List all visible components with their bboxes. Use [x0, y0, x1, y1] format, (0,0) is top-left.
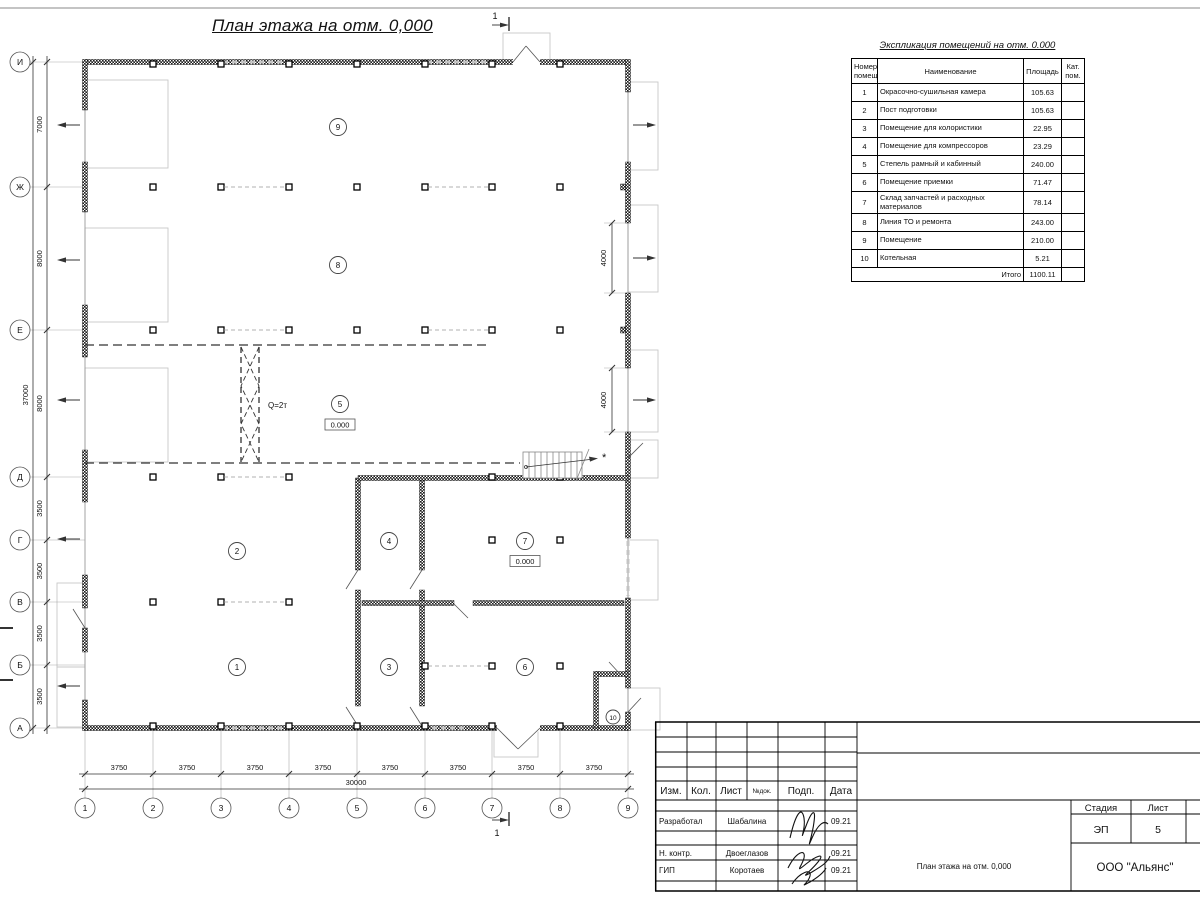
room-num: 1 — [852, 84, 878, 102]
room-num: 10 — [852, 250, 878, 268]
room-name: Помещение приемки — [878, 174, 1024, 192]
sign-date: 09.21 — [831, 849, 852, 858]
axis-col-label: 8 — [558, 803, 563, 813]
room-cat — [1062, 102, 1085, 120]
col-podp: Подп. — [788, 786, 815, 797]
axis-col-label: 5 — [355, 803, 360, 813]
axis-col-label: 6 — [423, 803, 428, 813]
section-mark-top: 1 — [492, 11, 497, 21]
section-marks: 1 1 — [492, 11, 509, 838]
drawing-sheet: { "plan": { "title": "План этажа на отм.… — [0, 0, 1200, 900]
explication: Экспликация помещений на отм. 0.000 Номе… — [851, 40, 1084, 282]
room-circle-2: 2 — [235, 547, 240, 556]
room-num: 4 — [852, 138, 878, 156]
titleblock: Изм. Кол. Лист №док. Подп. Дата Разработ… — [655, 722, 1200, 891]
room-num: 2 — [852, 102, 878, 120]
room-num: 3 — [852, 120, 878, 138]
room-name: Степель рамный и кабинный — [878, 156, 1024, 174]
axis-row-label: Д — [17, 472, 23, 482]
table-row: 6Помещение приемки71.47 — [852, 174, 1085, 192]
room-cat — [1062, 250, 1085, 268]
col-date: Дата — [830, 786, 853, 797]
svg-text:3500: 3500 — [35, 625, 44, 642]
room-cat — [1062, 214, 1085, 232]
stage-label: Стадия — [1085, 803, 1117, 814]
crane-strip — [241, 347, 259, 462]
sheet-label: Лист — [1148, 803, 1169, 814]
room-area: 240.00 — [1024, 156, 1062, 174]
svg-text:3750: 3750 — [247, 763, 264, 772]
svg-text:30000: 30000 — [346, 778, 367, 787]
table-row: 9Помещение210.00 — [852, 232, 1085, 250]
section-mark-bottom: 1 — [494, 828, 499, 838]
table-row: 8Линия ТО и ремонта243.00 — [852, 214, 1085, 232]
room-name: Пост подготовки — [878, 102, 1024, 120]
axis-row-label: Б — [17, 660, 23, 670]
room-num: 5 — [852, 156, 878, 174]
axis-row-label: В — [17, 597, 23, 607]
svg-text:3750: 3750 — [315, 763, 332, 772]
axis-row-label: Ж — [16, 182, 24, 192]
table-row: 2Пост подготовки105.63 — [852, 102, 1085, 120]
col-kol: Кол. — [691, 786, 711, 797]
axis-row-label: А — [17, 723, 23, 733]
table-total-row: Итого 1100.11 — [852, 268, 1085, 282]
room-circle-9: 9 — [336, 123, 341, 132]
table-row: 3Помещение для колористики22.95 — [852, 120, 1085, 138]
doc-name: План этажа на отм. 0,000 — [917, 862, 1012, 871]
windows — [223, 62, 628, 728]
total-area: 1100.11 — [1024, 268, 1062, 282]
col-izm: Изм. — [660, 786, 681, 797]
explication-title: Экспликация помещений на отм. 0.000 — [851, 40, 1084, 51]
room-name: Склад запчастей и расходных материалов — [878, 192, 1024, 214]
table-row: 5Степель рамный и кабинный240.00 — [852, 156, 1085, 174]
svg-text:3750: 3750 — [111, 763, 128, 772]
col-list: Лист — [720, 786, 742, 797]
svg-text:3500: 3500 — [35, 688, 44, 705]
room-area: 5.21 — [1024, 250, 1062, 268]
level-mark: 0.000 — [331, 421, 350, 430]
room-name: Линия ТО и ремонта — [878, 214, 1024, 232]
header-num: Номер помещ. — [852, 59, 878, 84]
room-num: 8 — [852, 214, 878, 232]
svg-text:37000: 37000 — [21, 385, 30, 406]
zone-dashed-lines — [85, 345, 520, 463]
room-area: 105.63 — [1024, 102, 1062, 120]
sign-date: 09.21 — [831, 817, 852, 826]
axis-col-label: 3 — [219, 803, 224, 813]
axis-col-label: 2 — [151, 803, 156, 813]
room-area: 243.00 — [1024, 214, 1062, 232]
company-name: ООО "Альянс" — [1097, 862, 1174, 874]
svg-text:3750: 3750 — [382, 763, 399, 772]
sheet-value: 5 — [1155, 824, 1161, 836]
room-name: Помещение для компрессоров — [878, 138, 1024, 156]
room-circle-4: 4 — [387, 537, 392, 546]
axis-row-label: И — [17, 57, 23, 67]
room-area: 22.95 — [1024, 120, 1062, 138]
table-header-row: Номер помещ. Наименование Площадь Кат. п… — [852, 59, 1085, 84]
sign-name: Коротаев — [730, 866, 765, 875]
titleblock-right: Стадия Лист Листов ЭП 5 План этажа на от… — [917, 803, 1200, 874]
header-name: Наименование — [878, 59, 1024, 84]
titleblock-headers: Изм. Кол. Лист №док. Подп. Дата — [660, 786, 852, 797]
svg-text:3750: 3750 — [586, 763, 603, 772]
room-circle-7: 7 — [523, 537, 528, 546]
svg-text:3750: 3750 — [179, 763, 196, 772]
room-circle-1: 1 — [235, 663, 240, 672]
sign-role: Разработал — [659, 817, 703, 826]
svg-text:3750: 3750 — [518, 763, 535, 772]
room-name: Окрасочно-сушильная камера — [878, 84, 1024, 102]
room-num: 6 — [852, 174, 878, 192]
svg-text:8000: 8000 — [35, 250, 44, 267]
svg-text:3500: 3500 — [35, 500, 44, 517]
table-row: 1Окрасочно-сушильная камера105.63 — [852, 84, 1085, 102]
titleblock-sign-rows: Разработал Шабалина 09.21 Н. контр. Двое… — [659, 817, 852, 875]
col-ndok: №док. — [752, 788, 771, 795]
room-name: Котельная — [878, 250, 1024, 268]
axis-row-label: Г — [18, 535, 23, 545]
room-name: Помещение для колористики — [878, 120, 1024, 138]
room-cat — [1062, 192, 1085, 214]
room-cat — [1062, 138, 1085, 156]
total-label: Итого — [852, 268, 1024, 282]
signatures — [788, 812, 830, 885]
sign-role: ГИП — [659, 866, 675, 875]
svg-text:4000: 4000 — [599, 392, 608, 409]
room-cat — [1062, 232, 1085, 250]
axis-col-label: 1 — [83, 803, 88, 813]
svg-text:4000: 4000 — [599, 250, 608, 267]
crane-load-label: Q=2т — [268, 401, 287, 410]
axis-col-label: 7 — [490, 803, 495, 813]
sign-role: Н. контр. — [659, 849, 692, 858]
wall-openings — [497, 58, 540, 732]
table-row: 4Помещение для компрессоров23.29 — [852, 138, 1085, 156]
header-cat: Кат. пом. — [1062, 59, 1085, 84]
table-row: 7Склад запчастей и расходных материалов7… — [852, 192, 1085, 214]
room-cat — [1062, 156, 1085, 174]
walls — [83, 60, 631, 731]
axis-bubbles: И Ж Е Д Г В Б А 1 2 3 4 5 6 7 8 9 — [10, 52, 638, 818]
room-cat — [1062, 84, 1085, 102]
stage-value: ЭП — [1093, 824, 1108, 836]
axis-col-label: 9 — [626, 803, 631, 813]
room-cat — [1062, 120, 1085, 138]
room-num: 9 — [852, 232, 878, 250]
room-cat — [1062, 174, 1085, 192]
axis-col-label: 4 — [287, 803, 292, 813]
room-circle-8: 8 — [336, 261, 341, 270]
room-circle-3: 3 — [387, 663, 392, 672]
note-asterisk: * — [602, 452, 607, 464]
explication-table: Номер помещ. Наименование Площадь Кат. п… — [851, 58, 1085, 282]
sign-date: 09.21 — [831, 866, 852, 875]
room-circle-6: 6 — [523, 663, 528, 672]
header-area: Площадь — [1024, 59, 1062, 84]
room-area: 71.47 — [1024, 174, 1062, 192]
level-mark: 0.000 — [516, 557, 535, 566]
room-area: 78.14 — [1024, 192, 1062, 214]
room-area: 23.29 — [1024, 138, 1062, 156]
room-name: Помещение — [878, 232, 1024, 250]
table-row: 10Котельная5.21 — [852, 250, 1085, 268]
svg-text:3500: 3500 — [35, 563, 44, 580]
axis-row-label: Е — [17, 325, 23, 335]
svg-text:3750: 3750 — [450, 763, 467, 772]
sign-name: Двоеглазов — [726, 849, 769, 858]
sign-name: Шабалина — [728, 817, 767, 826]
room-circle-10: 10 — [609, 715, 617, 722]
svg-text:8000: 8000 — [35, 395, 44, 412]
total-cat — [1062, 268, 1085, 282]
room-circle-5: 5 — [338, 400, 343, 409]
svg-text:7000: 7000 — [35, 116, 44, 133]
room-area: 105.63 — [1024, 84, 1062, 102]
room-area: 210.00 — [1024, 232, 1062, 250]
room-num: 7 — [852, 192, 878, 214]
dimension-labels: 7000 8000 8000 3500 3500 3500 3500 37000… — [21, 116, 608, 787]
